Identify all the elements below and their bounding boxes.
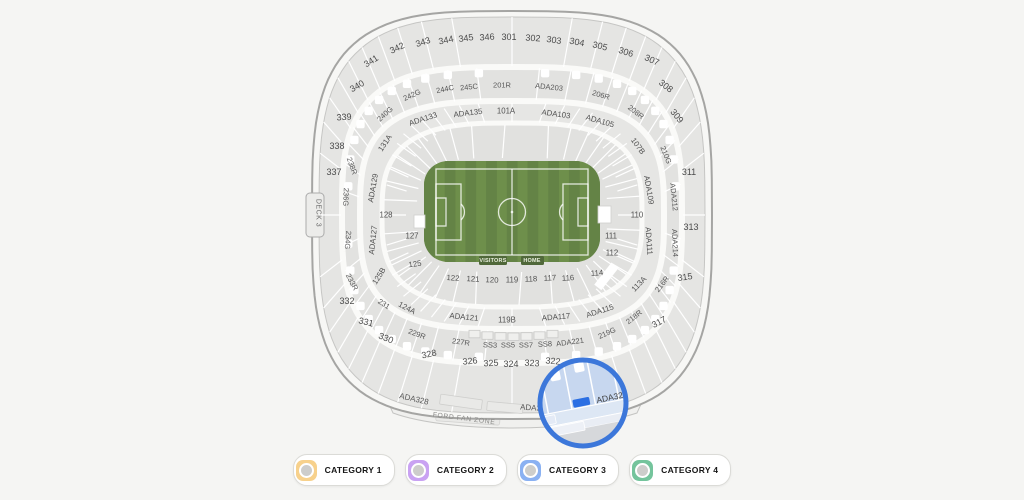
section-label-114[interactable]: 114 — [590, 268, 604, 278]
section-label-332[interactable]: 332 — [339, 296, 354, 306]
section-label-ADA214[interactable]: ADA214 — [670, 229, 680, 257]
section-label-128[interactable]: 128 — [379, 211, 392, 220]
section-label-339[interactable]: 339 — [336, 111, 352, 122]
section-label-346[interactable]: 346 — [479, 31, 495, 42]
section-label-234G[interactable]: 234G — [343, 230, 354, 249]
section-label-245C[interactable]: 245C — [460, 82, 479, 93]
category-dot-icon — [411, 463, 426, 478]
section-label-118[interactable]: 118 — [525, 274, 538, 283]
suite-box — [547, 330, 558, 338]
suite-box — [534, 332, 545, 340]
section-label-120[interactable]: 120 — [485, 275, 499, 284]
section-label-119[interactable]: 119 — [506, 276, 518, 285]
section-label-323[interactable]: 323 — [524, 358, 540, 369]
stadium-map[interactable]: VISITORSHOME 301302303304305306307308309… — [0, 0, 1024, 500]
section-label-345[interactable]: 345 — [458, 32, 474, 44]
category-dot-icon — [523, 463, 538, 478]
section-label-338[interactable]: 338 — [329, 141, 344, 151]
section-label-SS8[interactable]: SS8 — [538, 339, 553, 349]
suite-box — [482, 332, 493, 340]
section-label-301[interactable]: 301 — [501, 32, 516, 42]
legend: CATEGORY 1CATEGORY 2CATEGORY 3CATEGORY 4 — [0, 454, 1024, 486]
section-label-337[interactable]: 337 — [326, 167, 341, 177]
section-label-324[interactable]: 324 — [503, 359, 518, 369]
section-label-SS3[interactable]: SS3 — [483, 340, 497, 349]
legend-category-2[interactable]: CATEGORY 2 — [405, 454, 507, 486]
suite-box — [521, 333, 532, 341]
section-label-302[interactable]: 302 — [525, 32, 541, 43]
section-label-111[interactable]: 111 — [605, 232, 617, 241]
section-label-121[interactable]: 121 — [466, 274, 479, 284]
suite-box — [469, 330, 480, 338]
legend-category-4[interactable]: CATEGORY 4 — [629, 454, 731, 486]
legend-category-3[interactable]: CATEGORY 3 — [517, 454, 619, 486]
section-label-122[interactable]: 122 — [446, 273, 460, 283]
section-label-311[interactable]: 311 — [682, 167, 696, 177]
section-label-325[interactable]: 325 — [483, 358, 499, 369]
suite-box — [495, 333, 506, 341]
visitors-bench-label: VISITORS — [479, 258, 506, 264]
section-label-110[interactable]: 110 — [631, 211, 644, 220]
tunnel-west — [414, 215, 425, 228]
pitch — [424, 161, 600, 262]
legend-category-1[interactable]: CATEGORY 1 — [293, 454, 395, 486]
section-label-326[interactable]: 326 — [462, 355, 478, 367]
section-label-101A[interactable]: 101A — [497, 107, 516, 116]
suite-box — [508, 333, 519, 341]
section-label-SS7[interactable]: SS7 — [519, 341, 533, 350]
home-bench-label: HOME — [523, 258, 540, 264]
seat-map-page: VISITORSHOME 301302303304305306307308309… — [0, 0, 1024, 500]
category-swatch — [520, 460, 541, 481]
category-dot-icon — [635, 463, 650, 478]
category-swatch — [632, 460, 653, 481]
section-label-116[interactable]: 116 — [561, 273, 574, 283]
category-dot-icon — [299, 463, 314, 478]
section-label-119B[interactable]: 119B — [498, 316, 516, 325]
category-label: CATEGORY 4 — [661, 465, 718, 475]
section-label-315[interactable]: 315 — [677, 271, 693, 283]
section-label-112[interactable]: 112 — [606, 249, 618, 258]
section-label-303[interactable]: 303 — [546, 34, 562, 46]
section-label-SS5[interactable]: SS5 — [501, 341, 515, 350]
section-label-117[interactable]: 117 — [544, 273, 557, 283]
category-label: CATEGORY 1 — [325, 465, 382, 475]
category-label: CATEGORY 3 — [549, 465, 606, 475]
tunnel-east — [598, 206, 611, 223]
section-label-201R[interactable]: 201R — [493, 81, 512, 90]
section-label-313[interactable]: 313 — [683, 222, 698, 232]
category-label: CATEGORY 2 — [437, 465, 494, 475]
area-label: DECK 3 — [315, 199, 322, 227]
field: VISITORSHOME — [424, 161, 600, 265]
section-label-236G[interactable]: 236G — [341, 188, 351, 207]
category-swatch — [408, 460, 429, 481]
category-swatch — [296, 460, 317, 481]
section-label-127[interactable]: 127 — [405, 232, 418, 241]
section-label-125[interactable]: 125 — [408, 259, 423, 270]
